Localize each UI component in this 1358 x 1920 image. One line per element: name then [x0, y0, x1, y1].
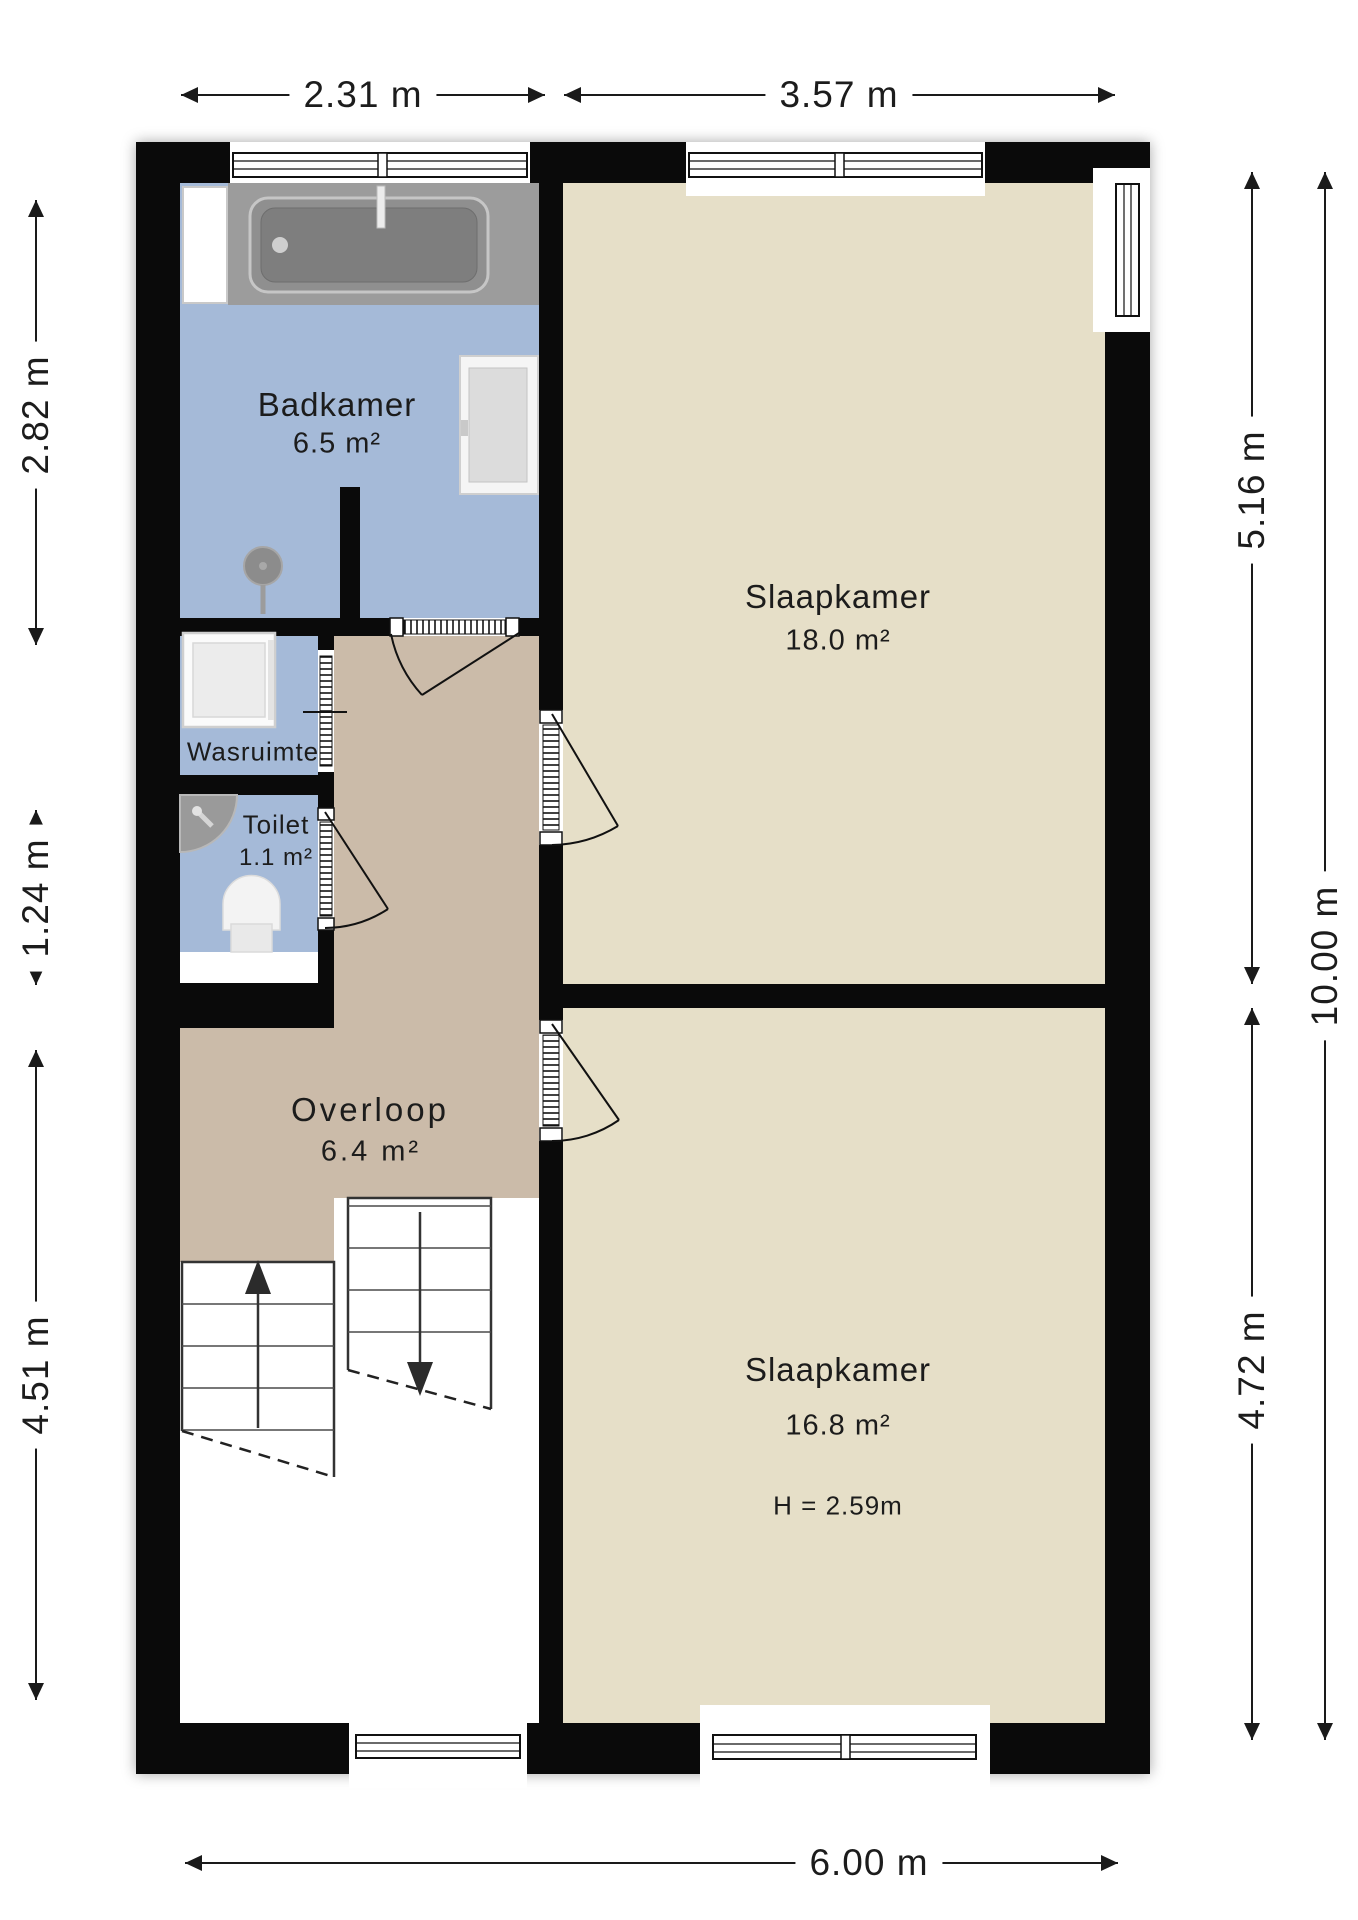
wall-wasruimte-toilet	[180, 775, 318, 795]
washing-machine	[183, 633, 275, 727]
dim-bottom-line	[185, 1855, 1118, 1871]
bath-faucet	[377, 186, 385, 228]
room-area-slaapkamer-boven: 18.0 m²	[785, 625, 890, 658]
room-label-wasruimte: Wasruimte	[187, 737, 319, 768]
room-area-badkamer: 6.5 m²	[293, 428, 381, 461]
dim-left-lower: 4.51 m	[15, 1301, 57, 1448]
window-bottom-slaapkamer	[700, 1705, 990, 1790]
room-label-toilet: Toilet	[243, 810, 310, 841]
dim-right-total: 10.00 m	[1304, 872, 1346, 1041]
floorplan-page: Badkamer 6.5 m² Wasruimte Toilet 1.1 m² …	[0, 0, 1358, 1920]
room-area-slaapkamer-onder: 16.8 m²	[785, 1410, 890, 1443]
dim-right-upper-line	[1244, 172, 1260, 984]
dim-left-upper: 2.82 m	[15, 341, 57, 488]
dim-left-middle: 1.24 m	[15, 824, 57, 971]
wall-badkamer-stub	[340, 487, 360, 618]
wall-badkamer-south-b	[518, 618, 539, 636]
room-height-slaapkamer-onder: H = 2.59m	[773, 1491, 903, 1522]
room-label-slaapkamer-onder: Slaapkamer	[745, 1351, 931, 1389]
dim-bottom: 6.00 m	[795, 1842, 942, 1884]
dim-top-left: 2.31 m	[289, 74, 436, 116]
window-top-badkamer	[230, 142, 530, 183]
bath-cupboard	[183, 187, 227, 303]
room-label-badkamer: Badkamer	[258, 386, 416, 424]
dim-right-lower: 4.72 m	[1231, 1296, 1273, 1443]
wall-toilet-south	[136, 983, 334, 1028]
room-area-toilet: 1.1 m²	[239, 844, 313, 872]
toilet-bowl	[223, 876, 280, 952]
wall-left	[136, 142, 180, 1774]
toilet-counter	[182, 952, 318, 983]
floorplan-drawing	[0, 0, 1358, 1920]
wall-bottom	[136, 1723, 1150, 1774]
wall-between-bedrooms	[563, 984, 1105, 1008]
window-top-slaapkamer	[686, 142, 985, 196]
window-bottom-stairwell	[349, 1723, 527, 1788]
bathtub-fixture	[250, 186, 488, 292]
mirror-cabinet	[460, 356, 538, 494]
room-label-slaapkamer-boven: Slaapkamer	[745, 578, 931, 616]
window-right-slaapkamer	[1093, 168, 1150, 332]
dim-top-right: 3.57 m	[765, 74, 912, 116]
overloop-floor-upper	[334, 636, 539, 1028]
room-area-overloop: 6.4 m²	[321, 1136, 421, 1169]
dim-right-upper: 5.16 m	[1231, 416, 1273, 563]
room-label-overloop: Overloop	[291, 1091, 449, 1129]
wall-center-vertical	[539, 142, 563, 1723]
wall-right	[1105, 142, 1150, 1774]
